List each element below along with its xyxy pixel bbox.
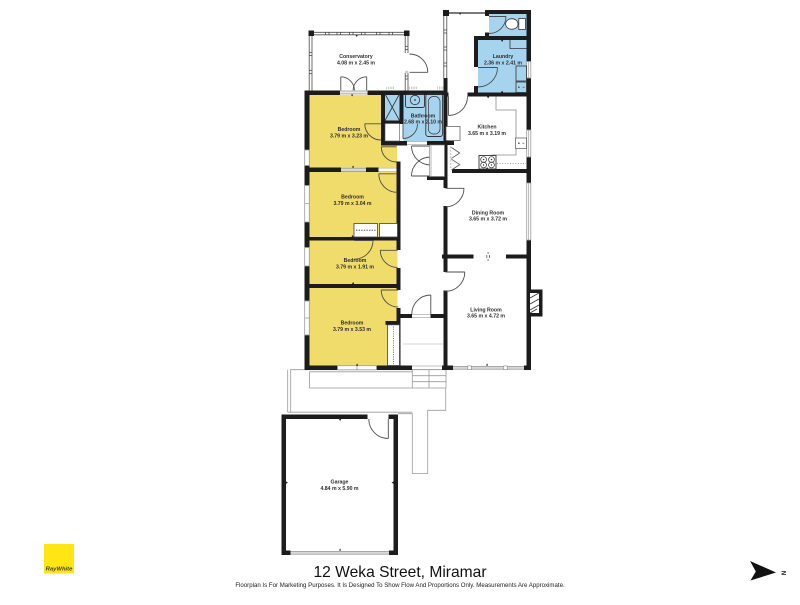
svg-text:Bedroom: Bedroom xyxy=(344,258,367,264)
svg-text:3.79 m x 3.53 m: 3.79 m x 3.53 m xyxy=(333,327,371,333)
svg-text:Bedroom: Bedroom xyxy=(338,127,361,133)
svg-text:Laundry: Laundry xyxy=(493,54,514,60)
svg-text:Bedroom: Bedroom xyxy=(341,195,364,201)
svg-text:3.65 m x 3.19 m: 3.65 m x 3.19 m xyxy=(468,131,506,137)
svg-text:Floorplan Is For Marketing Pur: Floorplan Is For Marketing Purposes. It … xyxy=(235,582,565,589)
svg-text:Living Room: Living Room xyxy=(470,307,502,313)
svg-text:3.65 m x 3.72 m: 3.65 m x 3.72 m xyxy=(469,217,507,223)
svg-text:Conservatory: Conservatory xyxy=(339,54,373,60)
svg-text:Bathroom: Bathroom xyxy=(411,113,436,119)
svg-text:4.08 m x 2.45 m: 4.08 m x 2.45 m xyxy=(337,60,375,66)
svg-text:N: N xyxy=(780,571,786,575)
svg-text:Garage: Garage xyxy=(331,480,349,486)
svg-text:Dining Room: Dining Room xyxy=(472,210,505,216)
svg-text:3.65 m x 4.72 m: 3.65 m x 4.72 m xyxy=(467,314,505,320)
svg-text:RayWhite: RayWhite xyxy=(46,566,74,572)
svg-text:12 Weka Street, Miramar: 12 Weka Street, Miramar xyxy=(313,564,486,581)
svg-text:2.36 m x 2.41 m: 2.36 m x 2.41 m xyxy=(484,60,522,66)
svg-text:3.79 m x 3.04 m: 3.79 m x 3.04 m xyxy=(333,201,371,207)
svg-text:2.68 m x 2.10 m: 2.68 m x 2.10 m xyxy=(404,120,442,126)
svg-text:4.84 m x 5.90 m: 4.84 m x 5.90 m xyxy=(320,486,358,492)
svg-text:Kitchen: Kitchen xyxy=(477,125,496,131)
svg-text:3.79 m x 1.91 m: 3.79 m x 1.91 m xyxy=(336,264,374,270)
svg-text:Bedroom: Bedroom xyxy=(341,321,364,327)
svg-text:3.79 m x 3.23 m: 3.79 m x 3.23 m xyxy=(330,133,368,139)
